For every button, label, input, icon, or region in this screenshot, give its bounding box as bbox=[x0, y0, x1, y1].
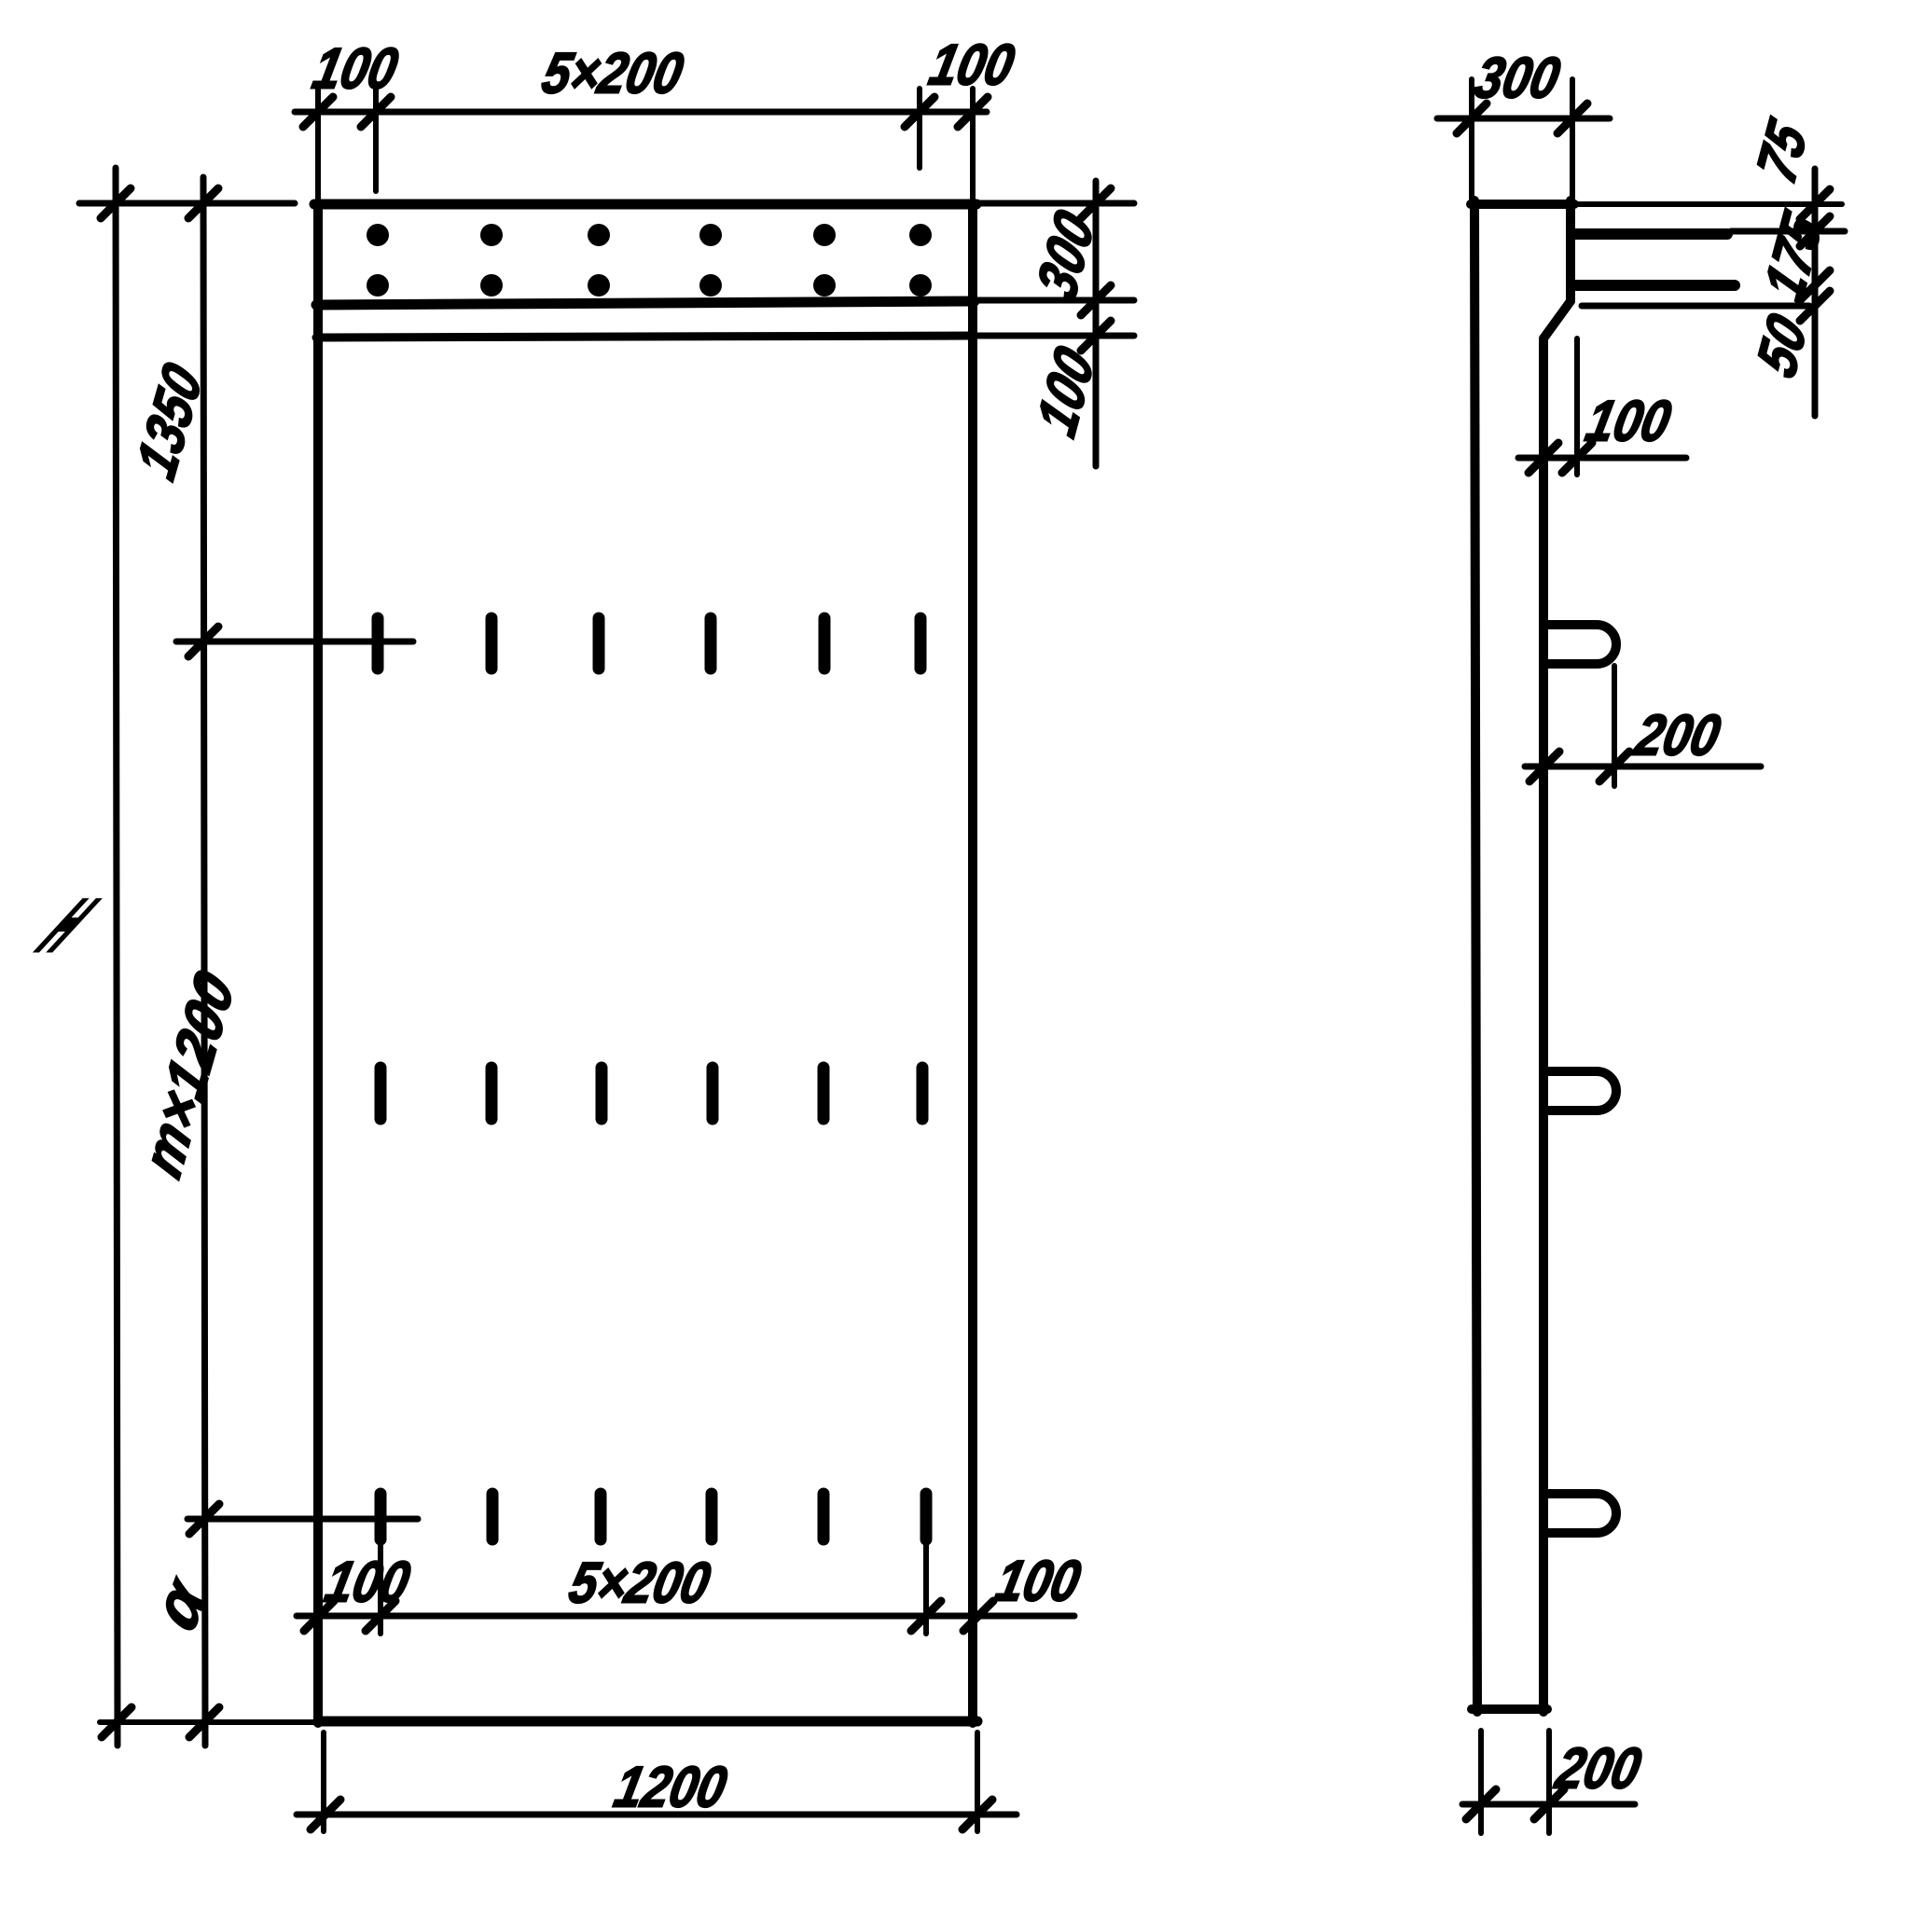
svg-text:100: 100 bbox=[320, 1550, 416, 1614]
svg-text:100: 100 bbox=[924, 33, 1020, 97]
svg-text:100: 100 bbox=[308, 36, 404, 101]
svg-text:100: 100 bbox=[1581, 389, 1677, 453]
svg-text:200: 200 bbox=[1550, 1736, 1646, 1801]
svg-text:100: 100 bbox=[990, 1549, 1086, 1613]
svg-text:5×200: 5×200 bbox=[537, 41, 689, 105]
svg-text:300: 300 bbox=[1470, 46, 1566, 110]
svg-text:1200: 1200 bbox=[609, 1755, 732, 1819]
svg-text:5×200: 5×200 bbox=[564, 1551, 716, 1615]
svg-text:200: 200 bbox=[1629, 703, 1725, 767]
